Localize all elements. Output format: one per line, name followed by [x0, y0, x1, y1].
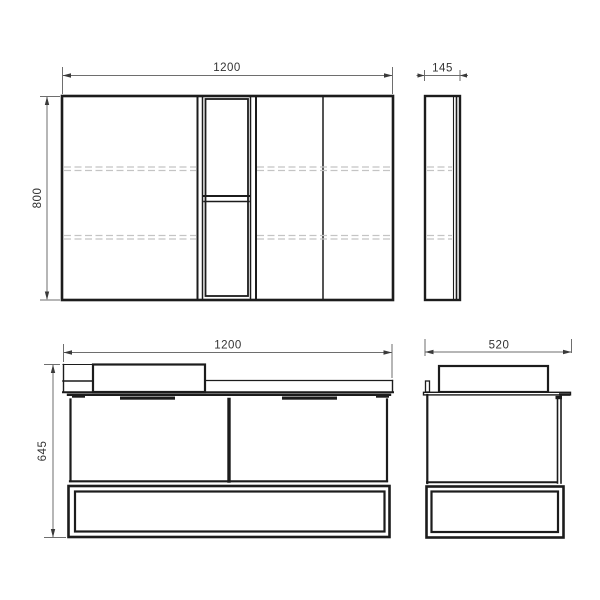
drawer-handle-left — [120, 397, 175, 400]
technical-drawing-canvas: 1200 800 145 — [0, 0, 600, 600]
mirror-carcass — [62, 96, 393, 300]
vanity-open-shelf-front — [69, 486, 390, 537]
basin-front — [93, 365, 205, 393]
wall-bracket-side — [559, 393, 570, 396]
dimension-label-vanity-depth: 520 — [489, 340, 510, 352]
counter-front-upstand — [426, 381, 430, 392]
dimension-label-mirror-width: 1200 — [213, 62, 241, 74]
vanity-open-shelf-side — [427, 487, 564, 538]
vanity-front-view — [63, 365, 393, 538]
drawer-handle-right — [282, 397, 337, 400]
basin-side — [439, 366, 548, 392]
dimension-mirror-depth: 145 — [417, 63, 469, 82]
dimension-vanity-depth: 520 — [425, 339, 572, 356]
dimension-label-mirror-depth: 145 — [432, 63, 453, 75]
wall-bracket-side-lower — [556, 396, 563, 399]
vanity-countertop-side — [424, 392, 571, 395]
vanity-drawers-front — [70, 400, 387, 482]
mirror-cabinet-side-view — [425, 96, 460, 300]
dimension-label-mirror-height: 800 — [32, 188, 44, 209]
dimension-vanity-height: 645 — [37, 365, 66, 538]
wall-bracket-left — [72, 395, 85, 398]
mirror-cabinet-front-view — [62, 96, 393, 300]
dimension-mirror-width: 1200 — [63, 62, 393, 94]
dimension-label-vanity-height: 645 — [37, 441, 49, 462]
technical-drawing-page: 1200 800 145 — [0, 0, 600, 600]
dimension-mirror-height: 800 — [32, 97, 60, 301]
dimension-label-vanity-width: 1200 — [214, 340, 242, 352]
wall-bracket-right — [376, 395, 389, 398]
vanity-side-view — [424, 366, 571, 538]
